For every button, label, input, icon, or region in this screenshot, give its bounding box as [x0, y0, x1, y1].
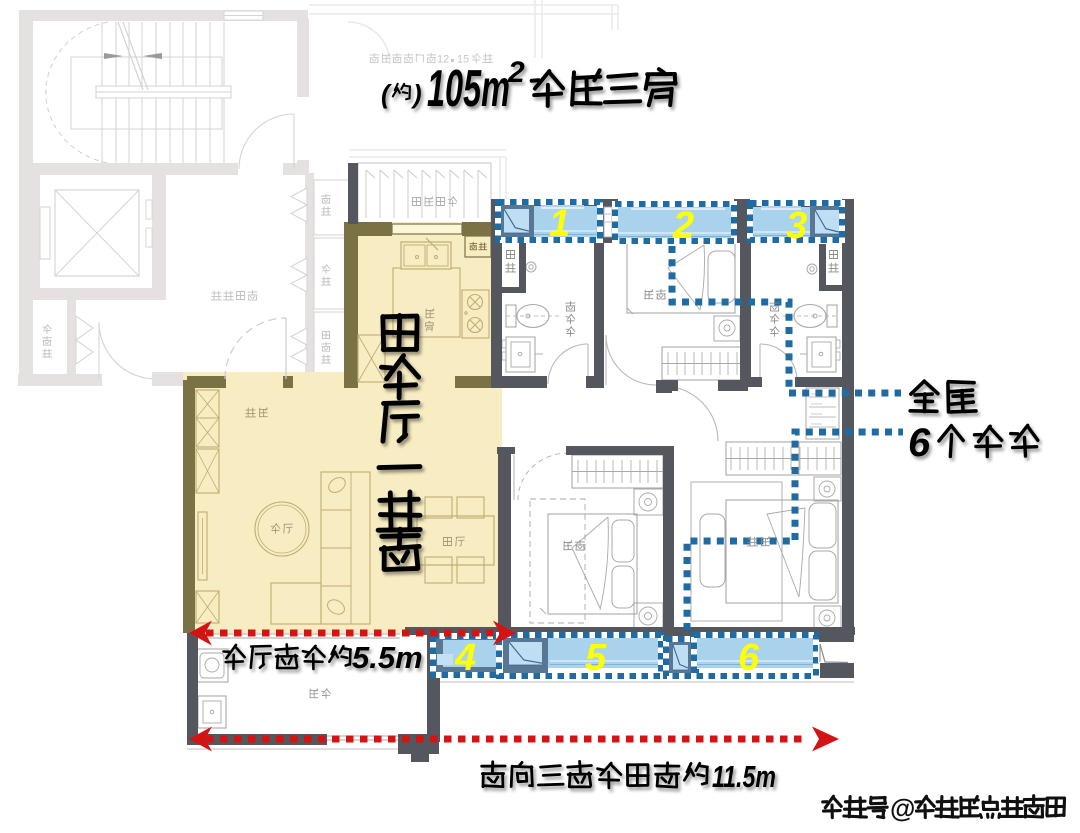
svg-text:11.5m: 11.5m — [712, 759, 776, 794]
svg-text:6: 6 — [908, 421, 931, 465]
svg-text:5.5m: 5.5m — [352, 640, 423, 675]
svg-text:5: 5 — [585, 637, 607, 679]
svg-text:1: 1 — [549, 203, 570, 245]
svg-text:@: @ — [890, 793, 915, 823]
svg-text:105m: 105m — [427, 60, 510, 118]
svg-text:4: 4 — [454, 637, 476, 679]
svg-text:6: 6 — [738, 637, 760, 679]
svg-text:2: 2 — [672, 205, 694, 247]
svg-text:3: 3 — [786, 205, 807, 247]
svg-text:2: 2 — [507, 56, 525, 89]
